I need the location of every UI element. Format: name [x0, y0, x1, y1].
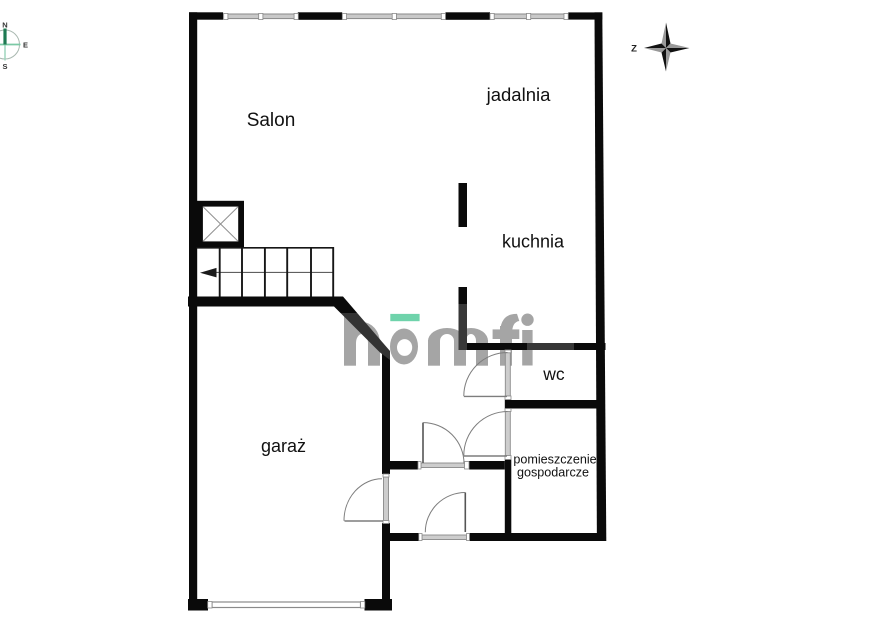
- svg-text:kuchnia: kuchnia: [502, 232, 565, 252]
- svg-text:S: S: [2, 62, 7, 71]
- svg-text:garaż: garaż: [261, 436, 306, 456]
- svg-text:Z: Z: [631, 44, 637, 55]
- svg-text:E: E: [23, 41, 28, 50]
- svg-text:N: N: [2, 21, 7, 30]
- svg-text:pomieszczenie: pomieszczenie: [513, 453, 596, 467]
- svg-text:wc: wc: [542, 364, 565, 384]
- svg-text:gospodarcze: gospodarcze: [517, 466, 589, 480]
- svg-text:jadalnia: jadalnia: [486, 84, 551, 105]
- svg-text:Salon: Salon: [247, 110, 296, 131]
